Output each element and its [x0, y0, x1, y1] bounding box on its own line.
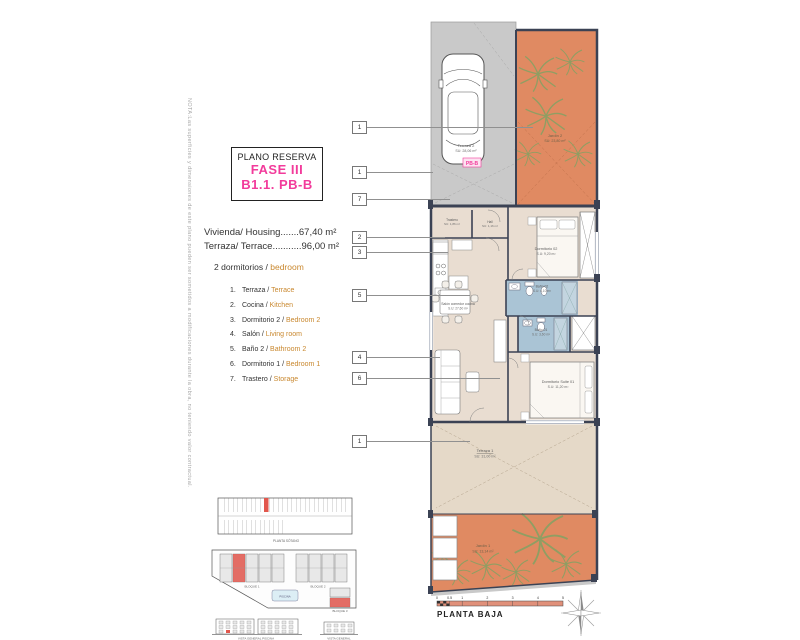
svg-text:3: 3: [512, 596, 514, 600]
svg-text:SU: 28,06 m²: SU: 28,06 m²: [455, 149, 477, 153]
callout-6: 5: [352, 289, 470, 302]
planter-boxes: [433, 516, 457, 580]
leader-line: [367, 199, 450, 200]
svg-text:Terraza 1: Terraza 1: [477, 448, 494, 453]
svg-text:PLANTA SÓTANO: PLANTA SÓTANO: [273, 538, 300, 543]
svg-text:BLOQUE 3: BLOQUE 3: [332, 609, 347, 613]
callout-1: 1: [352, 121, 533, 134]
svg-text:VISTA GENERAL PISCINA: VISTA GENERAL PISCINA: [238, 637, 274, 640]
svg-text:Terraza 2: Terraza 2: [458, 143, 475, 148]
legend-item: 6.Dormitorio 1 / Bedroom 1: [230, 361, 320, 376]
svg-text:Jardín 2: Jardín 2: [548, 133, 563, 138]
floor-plan-sheet: NOTA:Las superficies y dimensiones de es…: [0, 0, 800, 640]
unit-tag: PB-B: [463, 158, 481, 167]
leader-line: [367, 237, 445, 238]
bedrooms-en: bedroom: [270, 262, 304, 272]
svg-text:0.5: 0.5: [447, 596, 452, 600]
callout-9: 1: [352, 435, 470, 448]
unit-label: B1.1. PB-B: [232, 177, 322, 192]
leader-line: [367, 127, 533, 128]
title-block: PLANO RESERVA FASE III B1.1. PB-B: [231, 147, 323, 201]
svg-text:S.U: 11,20 m²: S.U: 11,20 m²: [548, 385, 570, 389]
svg-text:VISTA GENERAL: VISTA GENERAL: [327, 637, 351, 640]
north-arrow-icon: [556, 588, 606, 638]
svg-text:Dormitorio 02: Dormitorio 02: [535, 247, 558, 251]
legend-item: 5.Baño 2 / Bathroom 2: [230, 346, 320, 361]
svg-text:0: 0: [436, 596, 438, 600]
svg-text:Dormitorio Suite 01: Dormitorio Suite 01: [542, 380, 575, 384]
svg-text:4: 4: [537, 596, 539, 600]
leader-line: [367, 378, 500, 379]
callout-5: 3: [352, 246, 448, 259]
legend-item: 2.Cocina / Kitchen: [230, 302, 320, 317]
phase-label: FASE III: [232, 162, 322, 177]
room-label-dormitorio2: Dormitorio 02S.U: 9,20 m²: [535, 247, 558, 256]
floor-plan-drawing: PB-B Terraza 2SU: 28,06 m² Jardín 2SU: 2…: [428, 14, 603, 599]
highlighted-unit: [330, 598, 350, 607]
leader-line: [367, 295, 470, 296]
room-label-bano1: Baño 01S.U: 3,60 m²: [532, 328, 550, 336]
room-legend: 1.Terraza / Terrace 2.Cocina / Kitchen 3…: [230, 287, 320, 391]
highlighted-unit: [226, 630, 230, 633]
scale-bar: 0 0.5 1 2 3 4 5: [435, 593, 570, 611]
svg-text:SU: 23,80 m²: SU: 23,80 m²: [544, 139, 566, 143]
svg-text:BLOQUE 1: BLOQUE 1: [244, 585, 259, 589]
key-plan: PLANTA SÓTANO PISCINA BLOQUE 1 BLOQUE 2 …: [206, 492, 374, 640]
callout-3: 7: [352, 193, 450, 206]
bedrooms-es: 2 dormitorios /: [214, 262, 268, 272]
keyplan-parking: PLANTA SÓTANO: [218, 498, 352, 543]
leader-line: [367, 172, 433, 173]
plan-type-label: PLANO RESERVA: [232, 152, 322, 162]
svg-text:SU: 1,16 m²: SU: 1,16 m²: [482, 224, 498, 228]
toilet-icon: [526, 287, 533, 296]
svg-text:PB-B: PB-B: [466, 161, 479, 167]
room-label-trastero: TrasteroSU: 1,86 m²: [444, 218, 460, 226]
keyplan-elevations: VISTA GENERAL PISCINA VISTA GENERAL: [212, 619, 358, 640]
callout-4: 2: [352, 231, 445, 244]
callout-8: 6: [352, 372, 500, 385]
callout-7: 4: [352, 351, 440, 364]
svg-text:SU: 31,00 m²: SU: 31,00 m²: [474, 455, 496, 459]
legend-item: 4.Salón / Living room: [230, 331, 320, 346]
room-label-bano2: Baño 02S.U: 4,10 m²: [533, 285, 551, 293]
svg-text:S.U: 4,10 m²: S.U: 4,10 m²: [533, 289, 551, 293]
legend-item: 1.Terraza / Terrace: [230, 287, 320, 302]
leader-line: [367, 441, 470, 442]
garden2-area: [516, 30, 597, 206]
svg-text:PISCINA: PISCINA: [279, 594, 290, 598]
bedrooms-line: 2 dormitorios / bedroom: [214, 262, 304, 272]
svg-text:2: 2: [486, 596, 488, 600]
svg-text:BLOQUE 2: BLOQUE 2: [310, 585, 325, 589]
svg-text:Salón comedor cocina: Salón comedor cocina: [441, 302, 475, 306]
keyplan-site: PISCINA BLOQUE 1 BLOQUE 2 BLOQUE 3: [212, 550, 356, 613]
svg-text:Jardín 1: Jardín 1: [476, 543, 491, 548]
disclaimer-note: NOTA:Las superficies y dimensiones de es…: [186, 98, 192, 548]
svg-text:SU: 13,14 m²: SU: 13,14 m²: [472, 550, 494, 554]
svg-text:S.U: 27,60 m²: S.U: 27,60 m²: [448, 307, 468, 311]
area-summary: Vivienda/ Housing.......67,40 m² Terraza…: [204, 226, 339, 254]
terrace-area-line: Terraza/ Terrace...........96,00 m²: [204, 240, 339, 254]
legend-item: 3.Dormitorio 2 / Bedroom 2: [230, 317, 320, 332]
legend-item: 7.Trastero / Storage: [230, 376, 320, 391]
svg-text:SU: 1,86 m²: SU: 1,86 m²: [444, 222, 460, 226]
housing-area-line: Vivienda/ Housing.......67,40 m²: [204, 226, 339, 240]
svg-text:S.U: 3,60 m²: S.U: 3,60 m²: [532, 332, 550, 336]
scale-tick-labels: 0 0.5 1 2 3 4 5: [436, 596, 564, 600]
plan-name: PLANTA BAJA: [437, 610, 504, 619]
leader-line: [367, 252, 448, 253]
tv-unit-icon: [494, 320, 506, 362]
callout-2: 1: [352, 166, 433, 179]
svg-text:1: 1: [461, 596, 463, 600]
leader-line: [367, 357, 440, 358]
svg-text:S.U: 9,20 m²: S.U: 9,20 m²: [536, 252, 556, 256]
